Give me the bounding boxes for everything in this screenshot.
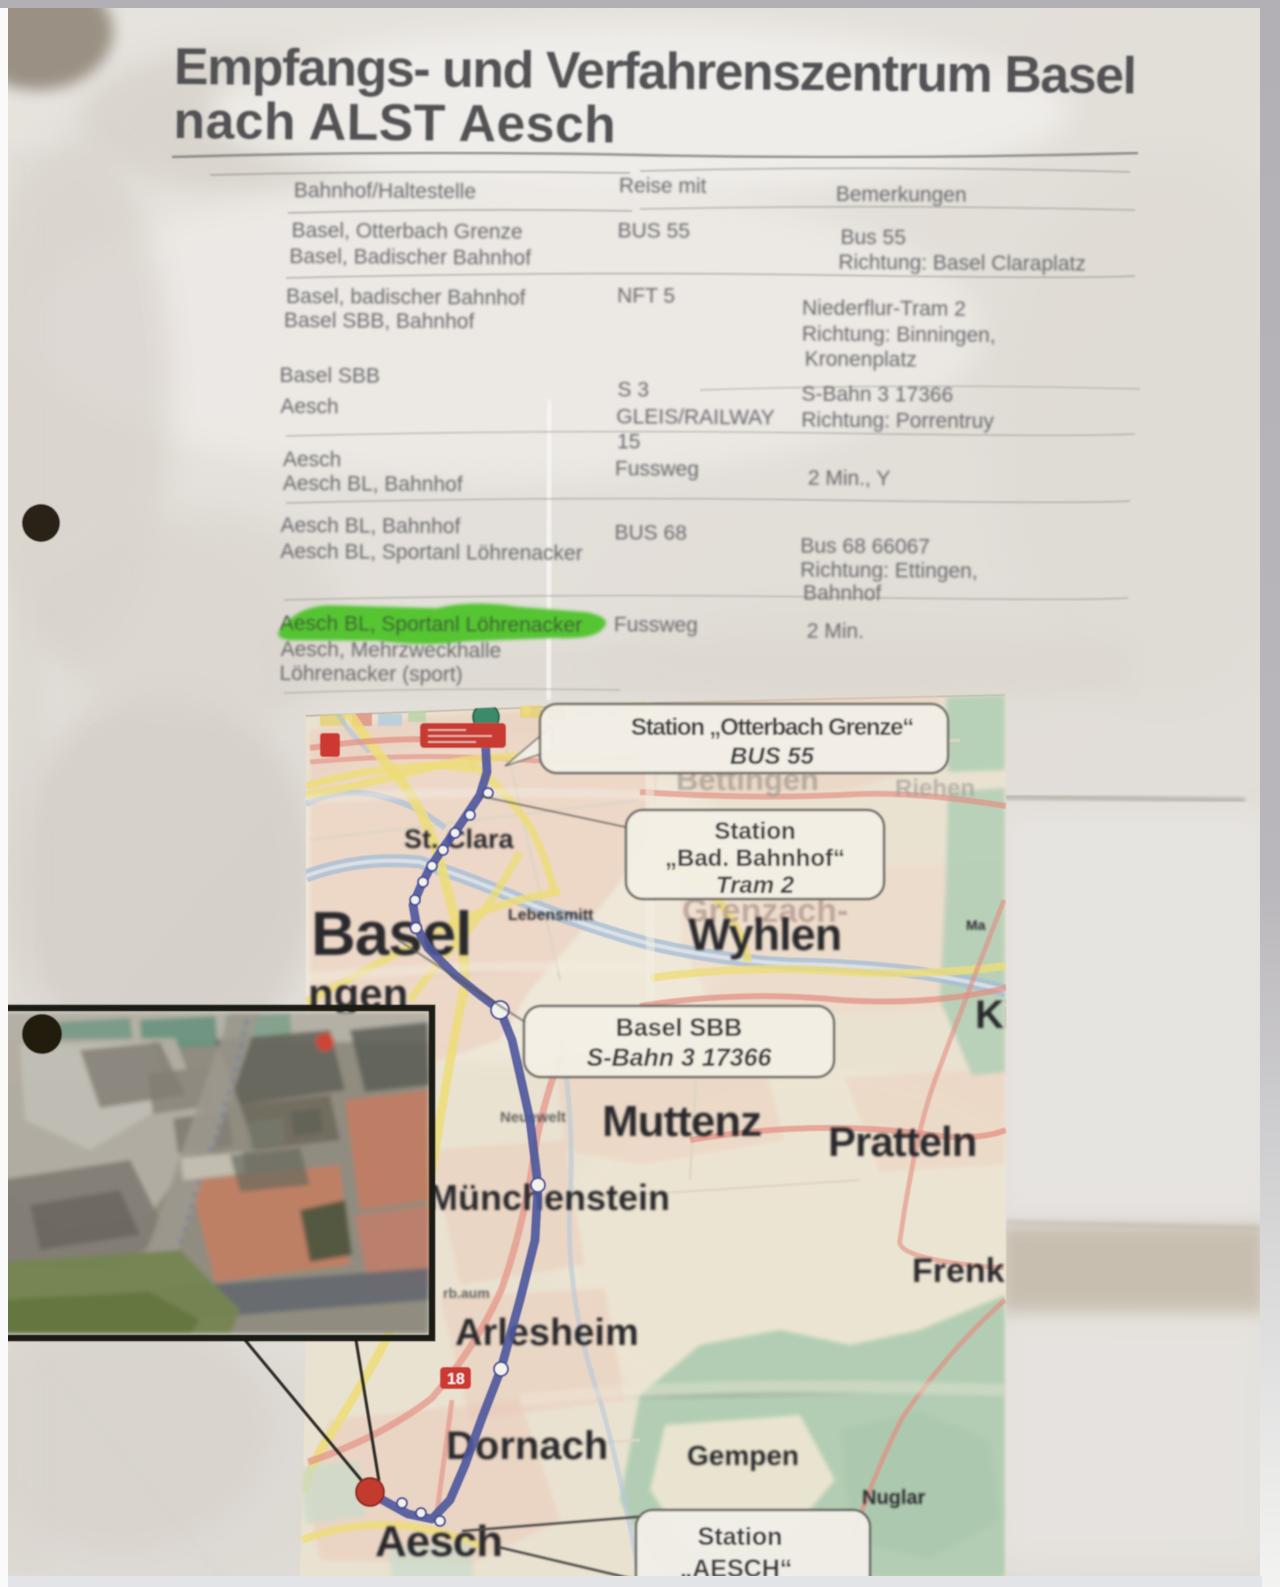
svg-text:S-Bahn 3 17366: S-Bahn 3 17366 xyxy=(587,1044,773,1072)
svg-text:18: 18 xyxy=(447,1371,465,1388)
svg-text:15: 15 xyxy=(617,430,641,453)
svg-text:Löhrenacker (sport): Löhrenacker (sport) xyxy=(279,662,462,686)
svg-text:BUS 68: BUS 68 xyxy=(614,521,687,545)
svg-text:Aesch BL, Bahnhof: Aesch BL, Bahnhof xyxy=(283,472,463,496)
svg-text:Basel, Otterbach Grenze: Basel, Otterbach Grenze xyxy=(291,219,522,244)
svg-text:Riehen: Riehen xyxy=(895,775,975,802)
svg-text:Fussweg: Fussweg xyxy=(614,613,698,637)
svg-text:Aesch BL, Bahnhof: Aesch BL, Bahnhof xyxy=(280,514,460,538)
svg-text:S 3: S 3 xyxy=(617,378,649,401)
svg-text:Station: Station xyxy=(714,818,795,845)
svg-text:Basel: Basel xyxy=(311,900,471,969)
svg-text:Bus 68 66067: Bus 68 66067 xyxy=(800,535,930,559)
svg-text:Basel SBB: Basel SBB xyxy=(616,1014,742,1042)
svg-text:„Bad. Bahnhof“: „Bad. Bahnhof“ xyxy=(665,845,845,872)
svg-text:Bahnhof: Bahnhof xyxy=(803,582,882,606)
svg-text:Gempen: Gempen xyxy=(687,1440,799,1471)
svg-text:Kronenplatz: Kronenplatz xyxy=(805,348,917,372)
svg-text:Tram 2: Tram 2 xyxy=(716,872,795,899)
svg-text:Niederflur-Tram 2: Niederflur-Tram 2 xyxy=(802,297,966,321)
svg-text:Richtung: Basel Claraplatz: Richtung: Basel Claraplatz xyxy=(838,251,1086,276)
svg-text:Richtung: Porrentruy: Richtung: Porrentruy xyxy=(801,409,994,433)
svg-text:Pratteln: Pratteln xyxy=(828,1118,976,1165)
svg-text:Frenk: Frenk xyxy=(912,1252,1005,1290)
svg-text:GLEIS/RAILWAY: GLEIS/RAILWAY xyxy=(616,405,774,429)
svg-text:Richtung: Ettingen,: Richtung: Ettingen, xyxy=(800,559,978,583)
svg-text:Aesch, Mehrzweckhalle: Aesch, Mehrzweckhalle xyxy=(281,638,502,663)
svg-text:rb.aum: rb.aum xyxy=(443,1285,490,1301)
svg-text:Lebensmitt: Lebensmitt xyxy=(508,907,594,924)
svg-text:Aesch: Aesch xyxy=(280,395,339,418)
svg-text:Richtung: Binningen,: Richtung: Binningen, xyxy=(802,323,996,347)
svg-text:Basel, badischer Bahnhof: Basel, badischer Bahnhof xyxy=(286,285,526,310)
svg-text:Wyhlen: Wyhlen xyxy=(688,909,841,960)
svg-text:Reise mit: Reise mit xyxy=(619,174,707,198)
svg-text:BUS 55: BUS 55 xyxy=(730,743,815,770)
svg-text:BUS 55: BUS 55 xyxy=(618,219,691,243)
svg-text:2 Min.: 2 Min. xyxy=(807,620,864,643)
svg-text:Basel, Badischer Bahnhof: Basel, Badischer Bahnhof xyxy=(289,245,531,270)
svg-text:Basel SBB: Basel SBB xyxy=(279,364,380,388)
svg-text:2 Min., Y: 2 Min., Y xyxy=(808,467,891,491)
svg-text:Ma: Ma xyxy=(966,917,986,933)
svg-text:NFT 5: NFT 5 xyxy=(617,284,675,307)
svg-text:nach ALST Aesch: nach ALST Aesch xyxy=(173,92,616,154)
svg-text:Arlesheim: Arlesheim xyxy=(455,1312,639,1354)
svg-text:Aesch: Aesch xyxy=(283,448,342,471)
svg-text:Bahnhof/Haltestelle: Bahnhof/Haltestelle xyxy=(294,179,476,203)
svg-text:Station: Station xyxy=(698,1523,783,1551)
svg-text:Bus 55: Bus 55 xyxy=(840,226,906,249)
svg-text:Aesch BL, Sportanl Löhrenacker: Aesch BL, Sportanl Löhrenacker xyxy=(280,540,583,565)
svg-text:Station „Otterbach Grenze“: Station „Otterbach Grenze“ xyxy=(631,714,913,741)
svg-text:Nuglar: Nuglar xyxy=(862,1487,926,1509)
svg-text:Bemerkungen: Bemerkungen xyxy=(836,183,967,207)
svg-text:Münchenstein: Münchenstein xyxy=(428,1177,670,1218)
svg-text:Aesch BL, Sportanl Löhrenacker: Aesch BL, Sportanl Löhrenacker xyxy=(280,612,583,637)
svg-text:Basel SBB, Bahnhof: Basel SBB, Bahnhof xyxy=(284,309,475,333)
svg-text:S-Bahn 3 17366: S-Bahn 3 17366 xyxy=(801,383,953,407)
svg-text:Muttenz: Muttenz xyxy=(602,1097,761,1146)
svg-text:Fussweg: Fussweg xyxy=(615,457,699,481)
